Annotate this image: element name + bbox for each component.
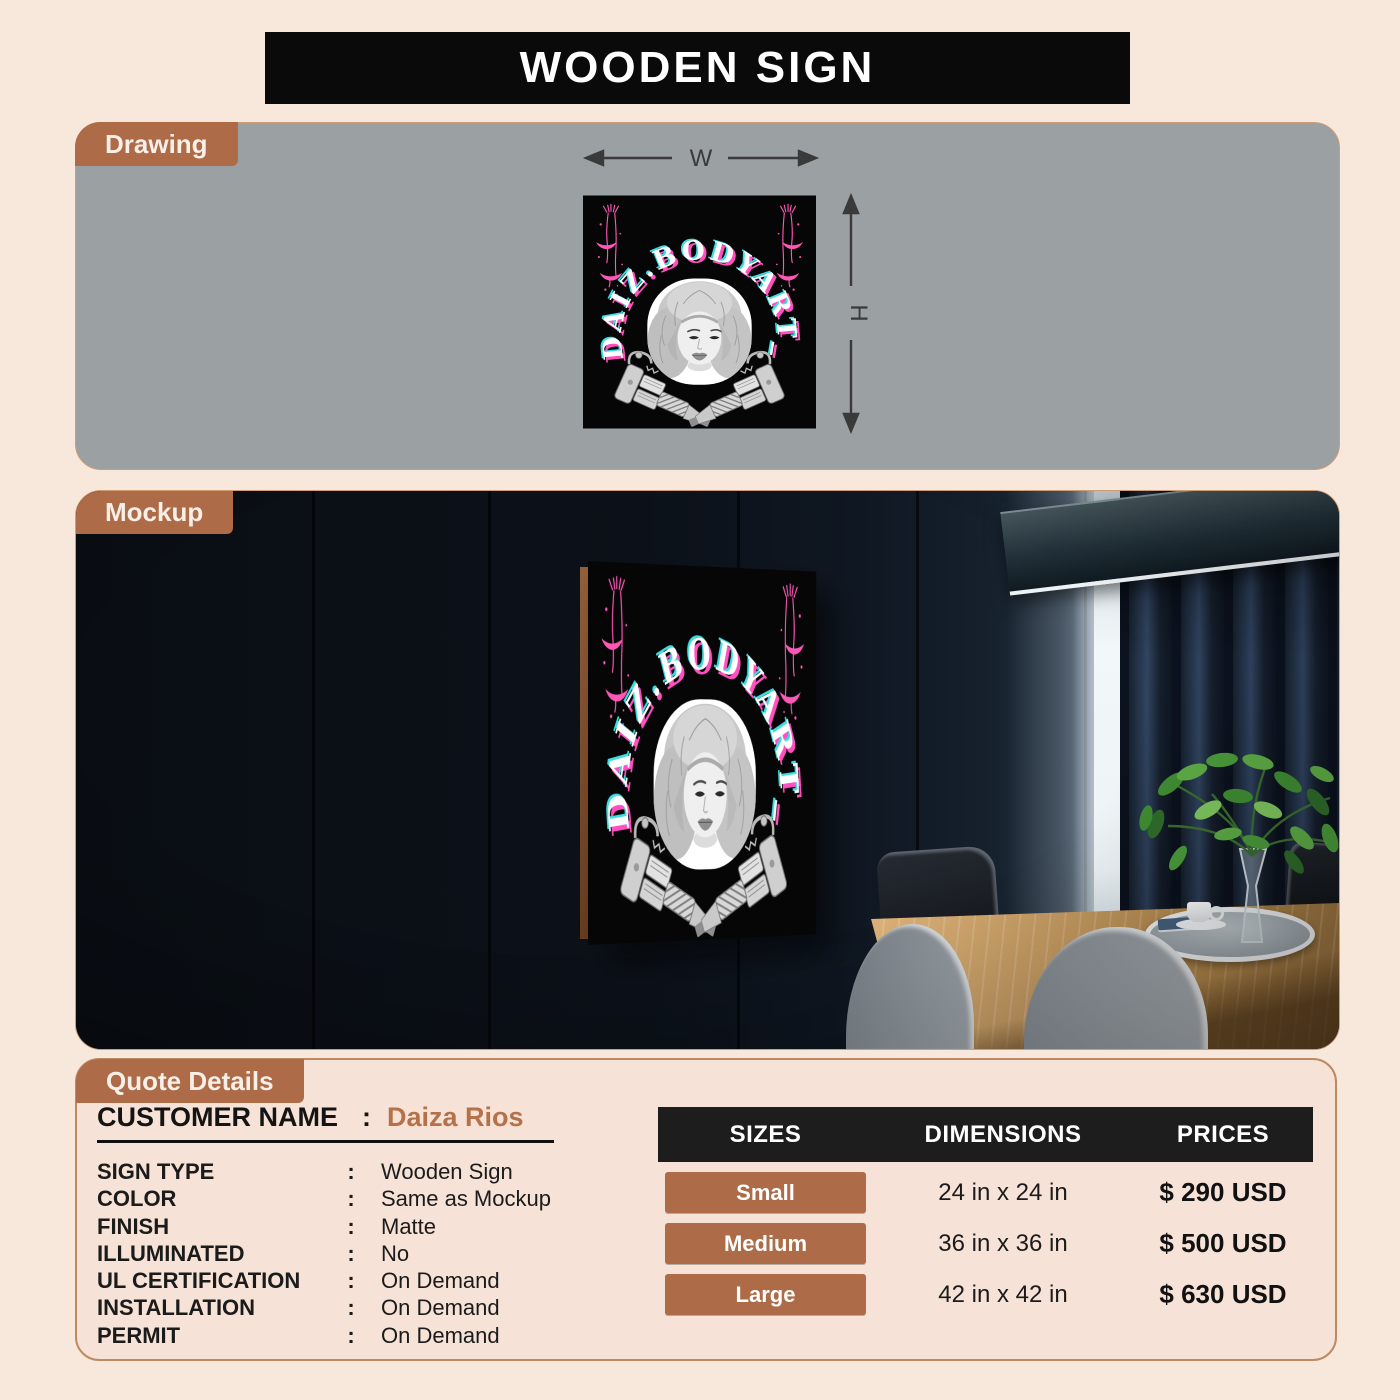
pricing-header-prices: PRICES bbox=[1133, 1121, 1313, 1149]
detail-value: No bbox=[365, 1240, 551, 1267]
separator-colon: : bbox=[337, 1294, 365, 1321]
customer-name-row: CUSTOMER NAME:Daiza Rios bbox=[97, 1102, 524, 1133]
tab-mockup: Mockup bbox=[75, 490, 233, 534]
height-arrowhead-top bbox=[844, 196, 858, 213]
pricing-header-row: SIZES DIMENSIONS PRICES bbox=[658, 1107, 1313, 1162]
detail-value: Matte bbox=[365, 1213, 551, 1240]
width-arrowhead-left bbox=[586, 151, 603, 165]
dimensions-value: 24 in x 24 in bbox=[873, 1179, 1133, 1207]
drawing-panel: Drawing W H bbox=[75, 122, 1340, 470]
separator-colon: : bbox=[337, 1158, 365, 1185]
price-value: $ 500 USD bbox=[1133, 1228, 1313, 1259]
tab-drawing: Drawing bbox=[75, 122, 238, 166]
pricing-header-sizes: SIZES bbox=[658, 1121, 873, 1149]
dimensions-value: 42 in x 42 in bbox=[873, 1281, 1133, 1309]
mockup-panel: Mockup bbox=[75, 490, 1340, 1050]
detail-label: UL CERTIFICATION bbox=[97, 1267, 337, 1294]
plant-leaves bbox=[1137, 751, 1339, 876]
pricing-header-dimensions: DIMENSIONS bbox=[873, 1121, 1133, 1149]
separator-colon: : bbox=[337, 1213, 365, 1240]
pricing-row-large: Large 42 in x 42 in $ 630 USD bbox=[658, 1274, 1313, 1315]
customer-name-value: Daiza Rios bbox=[387, 1102, 524, 1132]
detail-label: INSTALLATION bbox=[97, 1294, 337, 1321]
detail-value: On Demand bbox=[365, 1322, 551, 1349]
pricing-row-medium: Medium 36 in x 36 in $ 500 USD bbox=[658, 1223, 1313, 1264]
detail-label: ILLUMINATED bbox=[97, 1240, 337, 1267]
separator-colon: : bbox=[337, 1322, 365, 1349]
separator-colon: : bbox=[337, 1240, 365, 1267]
wall-seam bbox=[312, 491, 315, 1049]
tab-quote-details: Quote Details bbox=[76, 1059, 304, 1103]
separator-colon: : bbox=[337, 1267, 365, 1294]
height-arrowhead-bottom bbox=[844, 414, 858, 431]
tab-mockup-label: Mockup bbox=[105, 497, 203, 528]
pricing-table: SIZES DIMENSIONS PRICES Small 24 in x 24… bbox=[658, 1107, 1313, 1315]
separator-colon: : bbox=[337, 1185, 365, 1212]
size-button-small[interactable]: Small bbox=[665, 1172, 866, 1213]
sign-details-list: SIGN TYPE:Wooden Sign COLOR:Same as Mock… bbox=[97, 1158, 551, 1349]
dimensions-value: 36 in x 36 in bbox=[873, 1230, 1133, 1258]
detail-label: FINISH bbox=[97, 1213, 337, 1240]
size-button-large[interactable]: Large bbox=[665, 1274, 866, 1315]
separator-colon: : bbox=[362, 1102, 371, 1132]
sign-mockup bbox=[588, 561, 816, 945]
customer-name-label: CUSTOMER NAME bbox=[97, 1102, 338, 1132]
detail-value: On Demand bbox=[365, 1294, 551, 1321]
price-value: $ 630 USD bbox=[1133, 1279, 1313, 1310]
price-value: $ 290 USD bbox=[1133, 1177, 1313, 1208]
detail-value: Wooden Sign bbox=[365, 1158, 551, 1185]
width-label: W bbox=[690, 145, 713, 172]
page-title: WOODEN SIGN bbox=[520, 43, 876, 93]
detail-label: SIGN TYPE bbox=[97, 1158, 337, 1185]
detail-value: Same as Mockup bbox=[365, 1185, 551, 1212]
detail-label: COLOR bbox=[97, 1185, 337, 1212]
customer-underline bbox=[97, 1140, 554, 1143]
detail-value: On Demand bbox=[365, 1267, 551, 1294]
pricing-row-small: Small 24 in x 24 in $ 290 USD bbox=[658, 1172, 1313, 1213]
tab-quote-details-label: Quote Details bbox=[106, 1066, 274, 1097]
page-title-bar: WOODEN SIGN bbox=[265, 32, 1130, 104]
sign-drawing bbox=[583, 193, 816, 431]
quote-details-panel: Quote Details CUSTOMER NAME:Daiza Rios S… bbox=[75, 1058, 1337, 1361]
size-button-medium[interactable]: Medium bbox=[665, 1223, 866, 1264]
tab-drawing-label: Drawing bbox=[105, 129, 208, 160]
height-label: H bbox=[845, 304, 872, 321]
width-arrowhead-right bbox=[799, 151, 816, 165]
quote-sheet: { "page": { "title": "WOODEN SIGN" }, "d… bbox=[0, 0, 1400, 1400]
detail-label: PERMIT bbox=[97, 1322, 337, 1349]
wall-seam bbox=[488, 491, 491, 1049]
